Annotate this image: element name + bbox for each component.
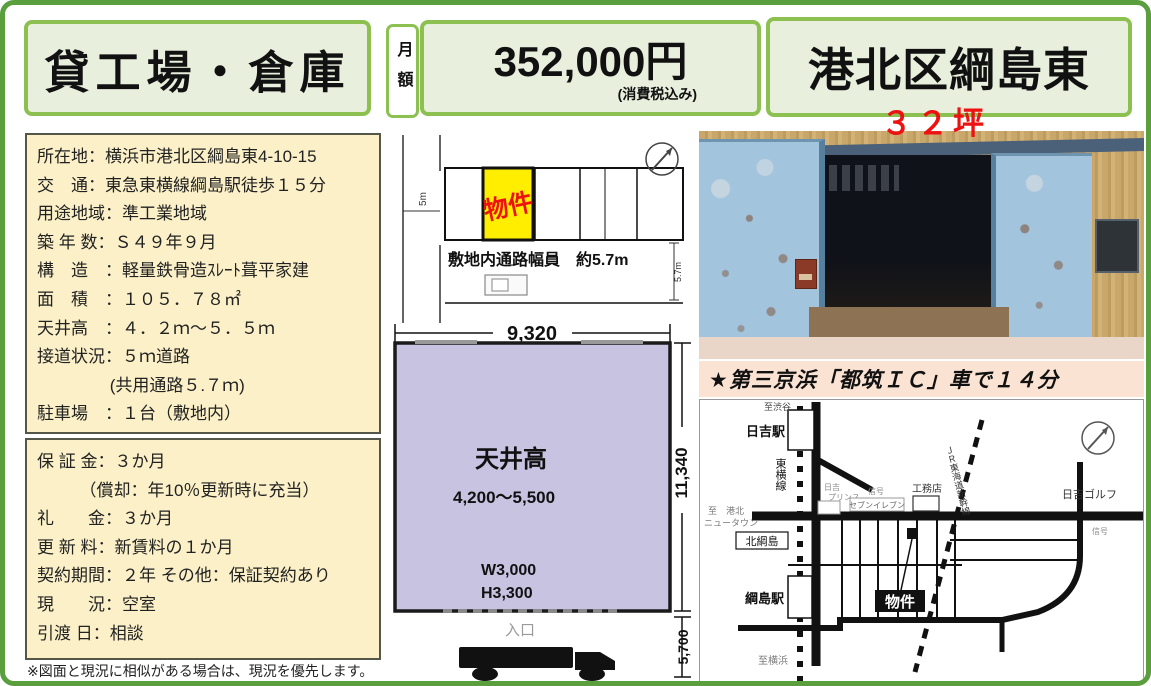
koumuten-label: 工務店 (912, 482, 942, 495)
info-line: 所在地：横浜市港北区綱島東4-10-15 (37, 143, 371, 172)
frontage-dim-label: 5,700 (675, 629, 691, 664)
signal-label-2: 信号 (1092, 526, 1108, 536)
price-box: 352,000円 (消費税込み) (420, 20, 761, 116)
passage-width-label: 5.7m (673, 262, 683, 282)
flyer-page: 貸工場・倉庫 月額 352,000円 (消費税込み) 港北区綱島東 ３２坪 所在… (0, 0, 1151, 686)
info-line: （償却：年10％更新時に充当） (37, 477, 371, 506)
info-line: 築 年 数：Ｓ４９年９月 (37, 229, 371, 258)
hiyoshi-station-box (788, 410, 814, 450)
toyoko-line-label: 東横線 (774, 458, 787, 491)
truck-icon (459, 647, 615, 681)
entrance-label: 入口 (505, 622, 535, 639)
info-line: 保 証 金：３か月 (37, 448, 371, 477)
to-kohoku-label-2: ニュータウン (704, 518, 758, 528)
to-shibuya-label: 至渋谷 (764, 401, 791, 412)
hiyoshi-prince-box (818, 501, 840, 514)
info-line: 更 新 料：新賃料の１か月 (37, 534, 371, 563)
access-note: ★第三京浜「都筑ＩＣ」車で１４分 (709, 364, 1059, 394)
road-width-label: 5m (418, 192, 429, 206)
area-map: ＪＲ東海道新幹線 日吉駅 至渋谷 東横線 綱島駅 至横浜 至 港北 ニュータウン… (699, 399, 1144, 683)
photo-left-door (699, 139, 825, 354)
hiyoshi-golf-label: 日吉ゴルフ (1062, 487, 1117, 501)
category-title: 貸工場・倉庫 (44, 36, 350, 101)
to-kohoku-label-1: 至 港北 (708, 505, 744, 516)
seven-eleven-label: セブンイレブン (849, 500, 905, 510)
units-block (445, 168, 683, 240)
info-line: 引渡 日：相談 (37, 620, 371, 649)
info-line: 天井高 ：４．２ｍ～５．５ｍ (37, 315, 371, 344)
price-tax-note: (消費税込み) (618, 84, 697, 104)
property-info-box: 所在地：横浜市港北区綱島東4-10-15 交 通：東急東横線綱島駅徒歩１５分 用… (25, 133, 381, 434)
info-line: 現 況：空室 (37, 591, 371, 620)
photo-side-window (1095, 219, 1139, 273)
site-plan-diagram: 5m 物件 敷地内通路幅員 約5.7m 5.7m (390, 135, 696, 323)
tsunashima-station-label: 綱島駅 (745, 591, 785, 606)
info-line: 構 造 ：軽量鉄骨造ｽﾚｰﾄ葺平家建 (37, 257, 371, 286)
property-label: 物件 (885, 593, 915, 611)
opening-width: W3,000 (481, 562, 536, 579)
info-line: 契約期間：２年 その他：保証契約あり (37, 562, 371, 591)
info-line: 接道状況：５ｍ道路 (37, 343, 371, 372)
info-line: 面 積 ：１０５．７８㎡ (37, 286, 371, 315)
monthly-label-box: 月額 (386, 24, 419, 118)
price-value: 352,000円 (494, 40, 688, 84)
floor-plan-diagram: 9,320 天井高 4,200～5,500 W3,000 H3,300 11,3… (385, 315, 697, 686)
hiyoshi-prince-label-1: 日吉 (824, 483, 840, 492)
street-grid (788, 520, 1078, 620)
category-box: 貸工場・倉庫 (24, 20, 371, 116)
property-photo (699, 131, 1144, 359)
access-band: ★第三京浜「都筑ＩＣ」車で１４分 (699, 361, 1144, 397)
kita-tsunashima-label: 北綱島 (746, 534, 779, 548)
photo-mailbox (795, 259, 817, 289)
hiyoshi-station-label: 日吉駅 (746, 424, 786, 439)
size-tsubo: ３２坪 (881, 98, 989, 143)
info-line: 用途地域：準工業地域 (37, 200, 371, 229)
opening-height: H3,300 (481, 585, 533, 602)
depth-dim-label: 11,340 (672, 447, 691, 498)
area-map-svg: ＪＲ東海道新幹線 日吉駅 至渋谷 東横線 綱島駅 至横浜 至 港北 ニュータウン… (700, 400, 1143, 682)
info-line: 駐車場 ：１台（敷地内） (37, 400, 371, 429)
contract-info-box: 保 証 金：３か月 （償却：年10％更新時に充当） 礼 金：３か月 更 新 料：… (25, 438, 381, 660)
car-box-inner (492, 279, 508, 291)
ceiling-label: 天井高 (475, 445, 547, 473)
monthly-label: 月額 (391, 41, 415, 101)
passage-note: 敷地内通路幅員 約5.7m (448, 250, 628, 269)
info-line: (共用通路５.７ｍ) (37, 372, 371, 401)
location-title: 港北区綱島東 (808, 34, 1090, 100)
disclaimer-note: ※図面と現況に相似がある場合は、現況を優先します。 (27, 661, 373, 681)
photo-ground-strip (699, 337, 1144, 359)
tsunashima-station-box (788, 576, 812, 618)
info-line: 礼 金：３か月 (37, 505, 371, 534)
koumuten-box (913, 496, 939, 511)
photo-wall-marks (829, 165, 899, 191)
property-marker (907, 528, 918, 539)
to-yokohama-label: 至横浜 (758, 654, 788, 667)
map-compass-icon (1082, 422, 1114, 454)
signal-label-1: 信号 (868, 486, 884, 496)
info-line: 交 通：東急東横線綱島駅徒歩１５分 (37, 172, 371, 201)
ceiling-range: 4,200～5,500 (453, 488, 555, 507)
